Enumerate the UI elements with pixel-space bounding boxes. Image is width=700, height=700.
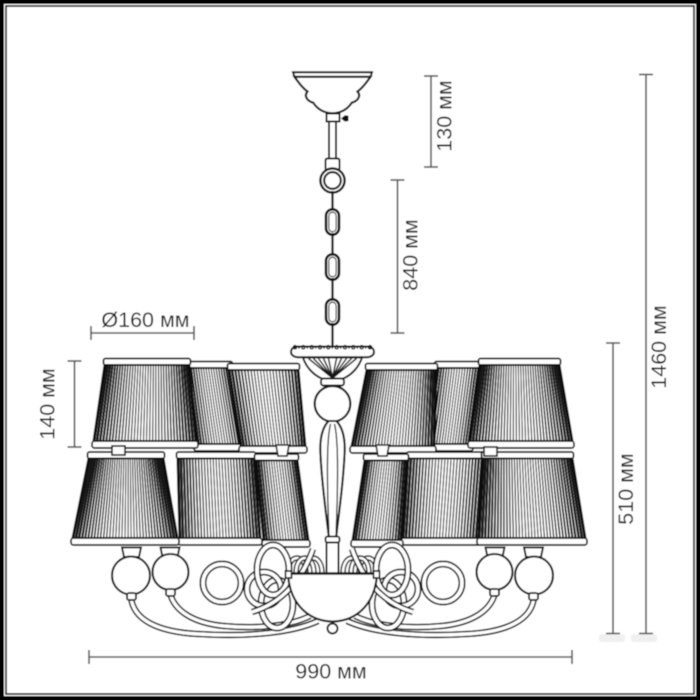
svg-text:840 мм: 840 мм [399, 219, 423, 290]
svg-text:140 мм: 140 мм [36, 368, 60, 439]
svg-text:510 мм: 510 мм [614, 453, 638, 524]
svg-text:1460 мм: 1460 мм [647, 305, 671, 388]
svg-text:130 мм: 130 мм [433, 80, 457, 151]
svg-text:990 мм: 990 мм [295, 660, 366, 684]
svg-text:Ø160 мм: Ø160 мм [101, 308, 189, 332]
